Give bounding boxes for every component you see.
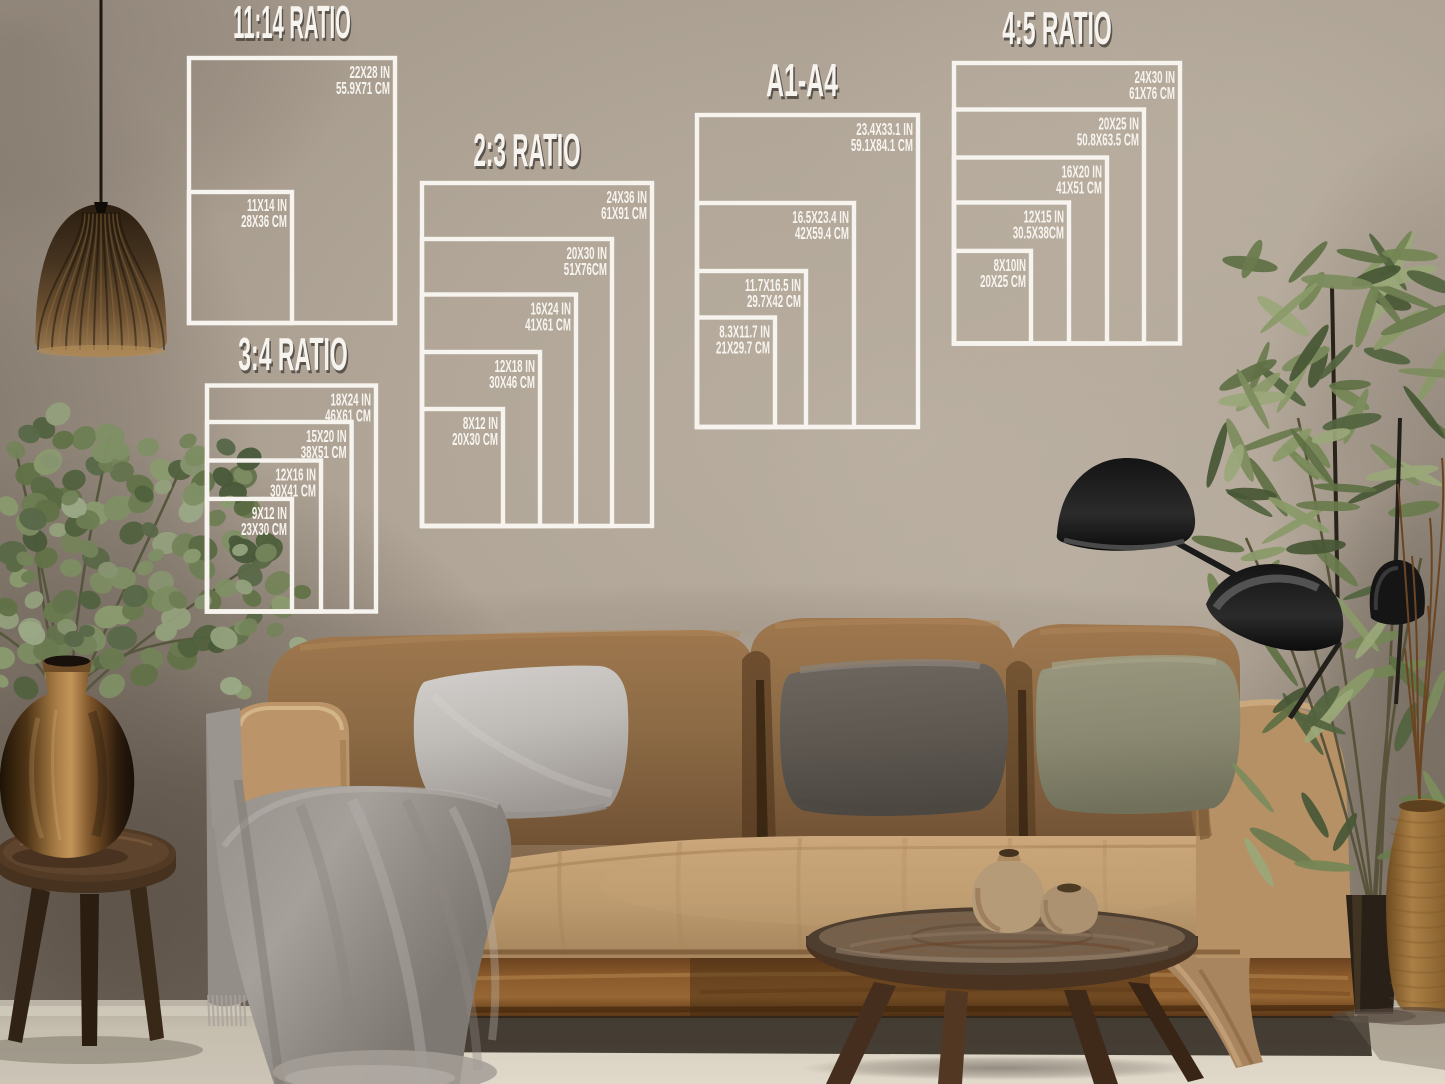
- svg-text:20X25 CM: 20X25 CM: [980, 272, 1026, 292]
- svg-text:61X76 CM: 61X76 CM: [1129, 84, 1175, 104]
- svg-text:30X46 CM: 30X46 CM: [489, 373, 535, 393]
- svg-text:41X61 CM: 41X61 CM: [525, 316, 571, 336]
- svg-text:2:3 RATIO: 2:3 RATIO: [473, 124, 580, 176]
- svg-text:23X30 CM: 23X30 CM: [241, 520, 287, 540]
- svg-text:61X91 CM: 61X91 CM: [601, 204, 647, 224]
- svg-text:51X76CM: 51X76CM: [564, 260, 607, 280]
- svg-text:59.1X84.1 CM: 59.1X84.1 CM: [851, 136, 913, 156]
- svg-text:55.9X71 CM: 55.9X71 CM: [336, 79, 390, 99]
- svg-text:11:14 RATIO: 11:14 RATIO: [233, 0, 351, 48]
- svg-text:A1-A4: A1-A4: [766, 55, 838, 106]
- svg-text:30.5X38CM: 30.5X38CM: [1013, 224, 1064, 244]
- svg-text:28X36 CM: 28X36 CM: [241, 212, 287, 232]
- svg-text:3:4 RATIO: 3:4 RATIO: [238, 328, 347, 380]
- svg-text:41X51 CM: 41X51 CM: [1056, 179, 1102, 199]
- svg-text:21X29.7 CM: 21X29.7 CM: [716, 339, 770, 359]
- svg-text:4:5 RATIO: 4:5 RATIO: [1002, 2, 1111, 54]
- svg-text:50.8X63.5 CM: 50.8X63.5 CM: [1077, 131, 1139, 151]
- svg-text:20X30 CM: 20X30 CM: [452, 430, 498, 450]
- svg-text:42X59.4 CM: 42X59.4 CM: [795, 224, 849, 244]
- svg-text:29.7X42 CM: 29.7X42 CM: [747, 292, 801, 312]
